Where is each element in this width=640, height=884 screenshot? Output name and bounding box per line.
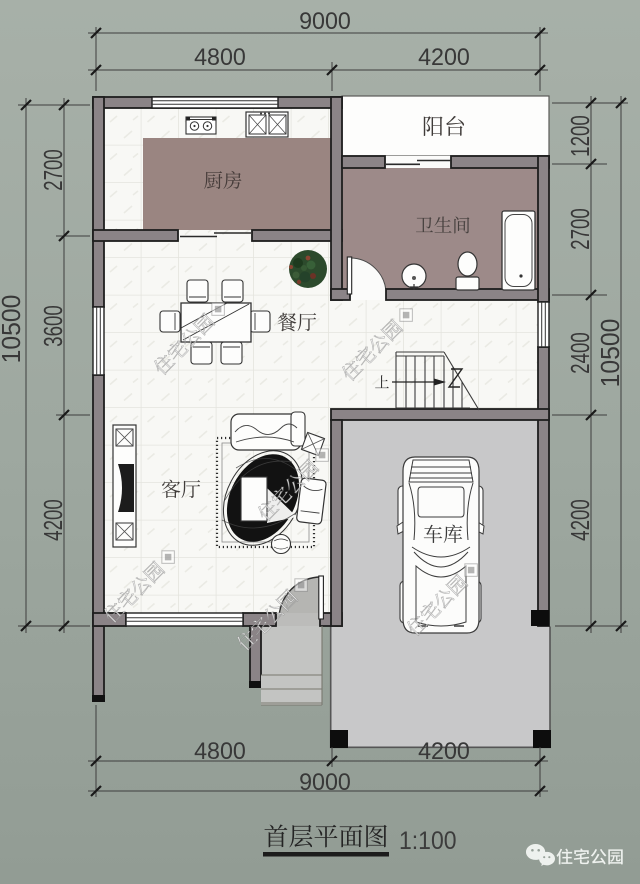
svg-text:4200: 4200 <box>38 499 68 541</box>
svg-text:10500: 10500 <box>0 295 26 364</box>
svg-text:4200: 4200 <box>565 499 595 541</box>
svg-text:1:100: 1:100 <box>399 827 457 855</box>
svg-text:4800: 4800 <box>194 45 246 71</box>
svg-text:9000: 9000 <box>299 9 351 35</box>
svg-text:4200: 4200 <box>418 739 470 765</box>
svg-text:4800: 4800 <box>194 739 246 765</box>
svg-text:2700: 2700 <box>565 208 595 250</box>
svg-text:10500: 10500 <box>597 319 625 388</box>
svg-text:1200: 1200 <box>565 115 595 157</box>
svg-text:9000: 9000 <box>299 770 351 796</box>
svg-text:2700: 2700 <box>38 149 68 191</box>
svg-text:2400: 2400 <box>565 332 595 374</box>
svg-text:3600: 3600 <box>38 305 68 347</box>
svg-text:4200: 4200 <box>418 45 470 71</box>
